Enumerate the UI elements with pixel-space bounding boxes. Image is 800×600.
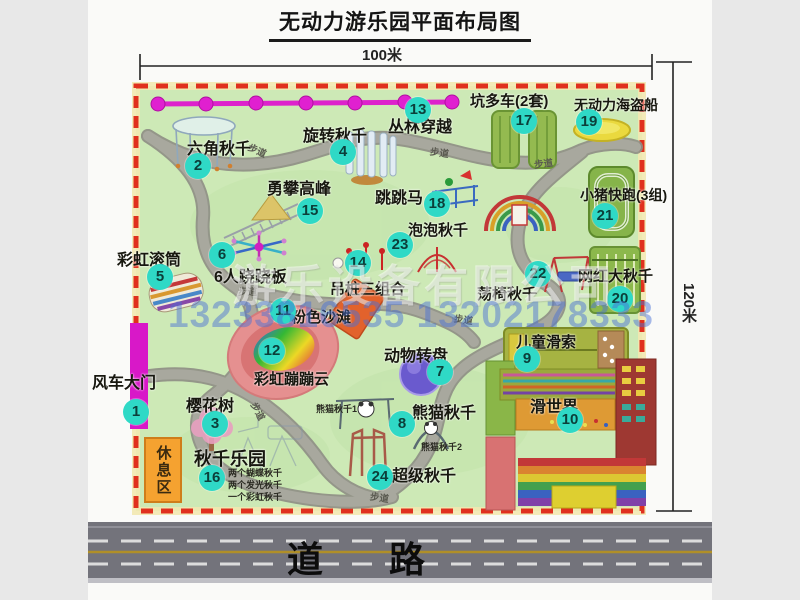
screenshot-root: 无动力游乐园平面布局图 100米 120米 休息区 风车大门 六角秋千 樱花树 … <box>0 0 800 600</box>
badge-2: 2 <box>185 153 211 179</box>
badge-17: 17 <box>511 108 537 134</box>
badge-3: 3 <box>202 411 228 437</box>
badge-19: 19 <box>576 109 602 135</box>
badge-24: 24 <box>367 464 393 490</box>
label-rainbow-bounce-cloud: 彩虹蹦蹦云 <box>254 368 329 389</box>
rest-area-box: 休息区 <box>144 437 182 503</box>
label-pit-cart: 坑多车(2套) <box>470 90 548 111</box>
path-label: 步道 <box>429 144 450 161</box>
label-piggy-run: 小猪快跑(3组) <box>580 185 667 205</box>
label-jumping-horse: 跳跳马 <box>375 184 423 208</box>
badge-7: 7 <box>427 359 453 385</box>
label-climbing-peak: 勇攀高峰 <box>267 175 331 199</box>
label-windmill-gate: 风车大门 <box>92 369 156 393</box>
path-label: 步道 <box>369 489 390 506</box>
label-bubble-swing: 泡泡秋千 <box>408 219 468 240</box>
badge-12: 12 <box>259 338 285 364</box>
badge-18: 18 <box>424 191 450 217</box>
badge-4: 4 <box>330 139 356 165</box>
label-super-swing: 超级秋千 <box>392 462 456 486</box>
road-label: 道 路 <box>287 531 453 583</box>
sublabel-panda-swing-1: 熊猫秋千1 <box>316 402 357 415</box>
badge-8: 8 <box>389 411 415 437</box>
badge-21: 21 <box>592 203 618 229</box>
dimension-width-label: 100米 <box>362 44 402 65</box>
badge-10: 10 <box>557 407 583 433</box>
label-rainbow-roller: 彩虹滚筒 <box>117 246 181 270</box>
badge-1: 1 <box>123 399 149 425</box>
page-title: 无动力游乐园平面布局图 <box>88 6 712 42</box>
sublabel-swing-park-3: 一个彩虹秋千 <box>228 490 282 503</box>
dimension-height-label: 120米 <box>678 283 699 323</box>
label-panda-swing: 熊猫秋千 <box>412 399 476 423</box>
badge-5: 5 <box>147 264 173 290</box>
badge-15: 15 <box>297 198 323 224</box>
badge-13: 13 <box>405 97 431 123</box>
watermark-phone: 13233816535 13202178333 <box>168 294 654 336</box>
sublabel-panda-swing-2: 熊猫秋千2 <box>421 440 462 453</box>
badge-16: 16 <box>199 465 225 491</box>
path-label: 步道 <box>533 155 554 172</box>
badge-9: 9 <box>514 346 540 372</box>
